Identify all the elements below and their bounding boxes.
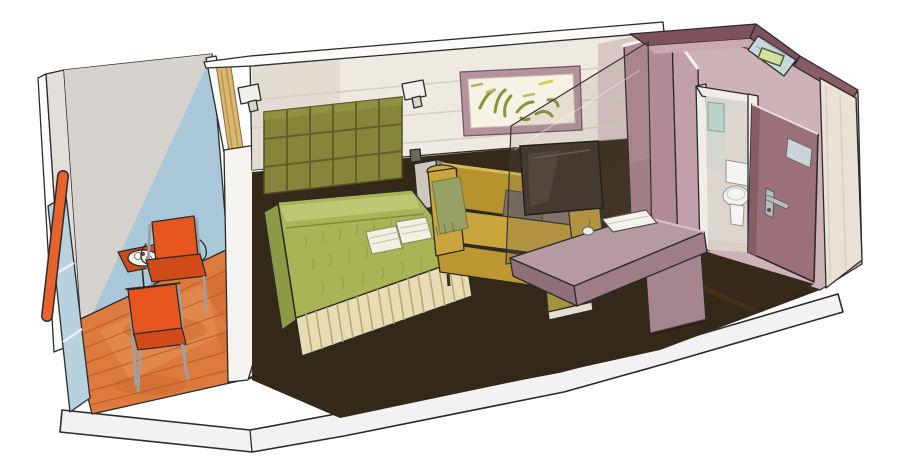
toilet-tank: [726, 160, 748, 186]
bathroom-mirror: [708, 102, 724, 132]
desk-small-object: [583, 227, 594, 235]
toilet-base: [730, 204, 744, 226]
sconce-right-bracket: [412, 96, 422, 108]
toilet-bowl: [723, 186, 749, 206]
chair-shadow-2: [114, 375, 186, 395]
illustration-canvas: [0, 0, 900, 461]
outlet: [410, 149, 421, 162]
sconce-left-bracket: [248, 100, 258, 112]
cabin-cutaway-illustration: [0, 0, 900, 461]
chair-near-back: [128, 284, 182, 336]
door-keyhole: [767, 208, 771, 212]
